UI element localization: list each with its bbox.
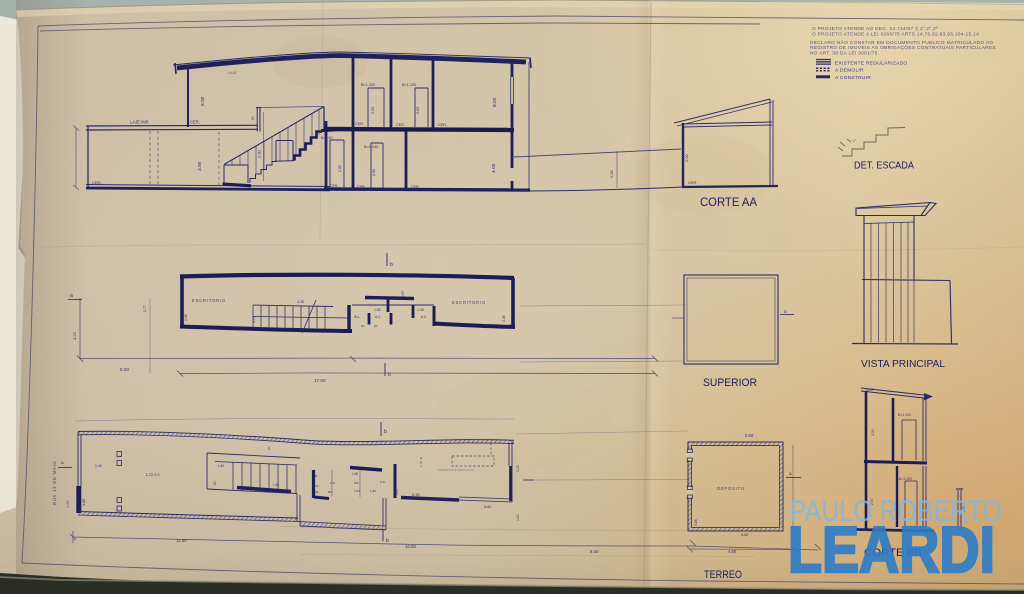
svg-text:CER.: CER. [688, 180, 698, 185]
svg-text:SUPERIOR: SUPERIOR [703, 377, 757, 389]
svg-text:RUA 13 DE MAIO: RUA 13 DE MAIO [52, 461, 57, 505]
svg-text:1.00: 1.00 [354, 489, 360, 493]
svg-text:A.C.: A.C. [421, 315, 427, 319]
svg-text:DEPOSITO: DEPOSITO [717, 486, 745, 491]
svg-text:2.63: 2.63 [395, 489, 399, 495]
svg-text:2.00: 2.00 [416, 107, 420, 114]
svg-text:TERREO: TERREO [704, 569, 742, 581]
svg-text:2.77: 2.77 [143, 305, 147, 312]
svg-text:B=1.100: B=1.100 [898, 413, 911, 417]
svg-text:5.50: 5.50 [741, 533, 748, 537]
svg-text:b: b [386, 538, 389, 544]
svg-text:1.40: 1.40 [218, 464, 224, 468]
svg-text:1.50: 1.50 [352, 472, 358, 476]
svg-text:1.40: 1.40 [417, 308, 424, 312]
svg-text:5.00: 5.00 [120, 367, 129, 372]
svg-text:60: 60 [361, 324, 365, 328]
svg-text:A CONSTRUIR: A CONSTRUIR [835, 75, 871, 81]
svg-text:O PROJETO ATENDE A LEI 8266/75: O PROJETO ATENDE A LEI 8266/75 ARTS 14,7… [812, 32, 979, 38]
svg-text:8.00: 8.00 [492, 97, 498, 107]
svg-text:3.03: 3.03 [516, 465, 520, 472]
svg-text:1.40: 1.40 [370, 489, 376, 493]
svg-text:1.20: 1.20 [516, 514, 520, 521]
svg-text:8.00: 8.00 [200, 96, 206, 106]
svg-text:1.40: 1.40 [95, 464, 102, 468]
svg-text:VISTA PRINCIPAL: VISTA PRINCIPAL [861, 359, 945, 370]
svg-text:A.C.: A.C. [375, 315, 381, 319]
svg-text:5.30: 5.30 [412, 492, 421, 497]
svg-text:WC: WC [354, 481, 360, 485]
svg-text:2.67: 2.67 [401, 291, 405, 297]
svg-text:LAJE IMP.: LAJE IMP. [130, 120, 149, 125]
svg-text:80: 80 [314, 474, 318, 478]
svg-text:3.85: 3.85 [694, 519, 698, 526]
svg-text:60: 60 [374, 324, 378, 328]
svg-text:b: b [388, 372, 391, 378]
svg-text:CER.: CER. [396, 123, 405, 127]
svg-text:CER.: CER. [438, 123, 447, 127]
svg-text:B=1.100: B=1.100 [899, 477, 912, 481]
svg-text:REGISTRO DE IMOVEIS AS OBRIGAÇ: REGISTRO DE IMOVEIS AS OBRIGAÇÕES CONTRA… [810, 44, 996, 51]
svg-text:2.00: 2.00 [609, 169, 614, 178]
svg-text:40: 40 [315, 490, 319, 494]
svg-text:LAJE: LAJE [228, 71, 237, 75]
svg-text:1.80: 1.80 [374, 308, 381, 312]
svg-text:CER.: CER. [355, 122, 364, 126]
svg-text:CER.: CER. [92, 180, 102, 185]
svg-text:a: a [61, 460, 64, 465]
svg-text:4.23: 4.23 [72, 331, 77, 340]
svg-text:A DEMOLIR: A DEMOLIR [835, 68, 864, 74]
svg-text:1.50: 1.50 [273, 483, 279, 487]
svg-text:2.00: 2.00 [684, 153, 689, 162]
svg-text:90: 90 [251, 116, 255, 120]
svg-text:.90: .90 [213, 481, 217, 486]
svg-text:B=1.100: B=1.100 [402, 83, 416, 87]
svg-text:O PROJETO ATENDE AO DEC. 24.71: O PROJETO ATENDE AO DEC. 24.714/87 § 1º,… [812, 26, 938, 32]
svg-text:NO ART. 38 DA LEI 8001/75: NO ART. 38 DA LEI 8001/75 [810, 50, 878, 56]
svg-text:W.C.: W.C. [313, 484, 320, 488]
svg-text:CORTE AA: CORTE AA [700, 197, 757, 209]
svg-text:17.60: 17.60 [314, 378, 326, 383]
svg-text:ESCRITORIO: ESCRITORIO [452, 300, 486, 305]
svg-text:4.00: 4.00 [252, 316, 256, 323]
svg-text:8.40: 8.40 [590, 549, 599, 554]
svg-text:a: a [789, 471, 792, 476]
svg-text:B=1.200: B=1.200 [361, 83, 375, 87]
svg-text:17: 17 [852, 139, 856, 143]
svg-text:80: 80 [328, 490, 332, 494]
svg-text:3.85: 3.85 [82, 499, 86, 506]
svg-text:a: a [70, 293, 73, 299]
svg-text:3.00: 3.00 [197, 161, 203, 171]
svg-text:DET. ESCADA: DET. ESCADA [854, 161, 914, 172]
svg-text:2.80: 2.80 [338, 165, 342, 172]
svg-text:a: a [784, 309, 787, 314]
svg-text:ILUMINACAO E VENTILACAO: ILUMINACAO E VENTILACAO [438, 468, 474, 472]
svg-text:2.45: 2.45 [184, 314, 188, 321]
svg-text:B=1.040: B=1.040 [364, 145, 378, 149]
svg-text:EXISTENTE REGULARIZADO: EXISTENTE REGULARIZADO [835, 61, 907, 67]
svg-text:2.00: 2.00 [372, 169, 376, 176]
svg-text:2.00: 2.00 [257, 149, 262, 158]
svg-text:4.50: 4.50 [728, 549, 737, 554]
svg-text:LEARDI: LEARDI [788, 513, 995, 586]
svg-text:4.00: 4.00 [491, 163, 497, 173]
svg-text:A.C.: A.C. [330, 481, 336, 485]
svg-text:2.00: 2.00 [871, 429, 875, 436]
svg-text:2.00: 2.00 [371, 107, 375, 114]
svg-text:10.60: 10.60 [405, 544, 417, 549]
svg-text:B=0.80: B=0.80 [321, 136, 333, 140]
svg-text:4.30: 4.30 [297, 300, 304, 304]
svg-text:LOJA: LOJA [146, 472, 161, 477]
svg-text:2.45: 2.45 [502, 315, 506, 322]
svg-text:ESCRITORIO: ESCRITORIO [192, 298, 226, 303]
svg-text:DECLARO NÃO CONSTAR EM DOCUMEN: DECLARO NÃO CONSTAR EM DOCUMENTO PUBLICO… [810, 39, 993, 46]
svg-text:20: 20 [267, 446, 271, 450]
svg-text:5.60: 5.60 [484, 505, 491, 509]
svg-text:CER.: CER. [190, 120, 200, 125]
svg-text:b: b [384, 429, 387, 435]
svg-text:4.25: 4.25 [66, 501, 70, 508]
svg-text:W.L.: W.L. [354, 315, 360, 319]
svg-text:11.80: 11.80 [176, 538, 187, 543]
svg-text:b: b [390, 262, 393, 268]
svg-text:A.C.: A.C. [380, 480, 386, 484]
svg-text:5.50: 5.50 [745, 433, 754, 438]
